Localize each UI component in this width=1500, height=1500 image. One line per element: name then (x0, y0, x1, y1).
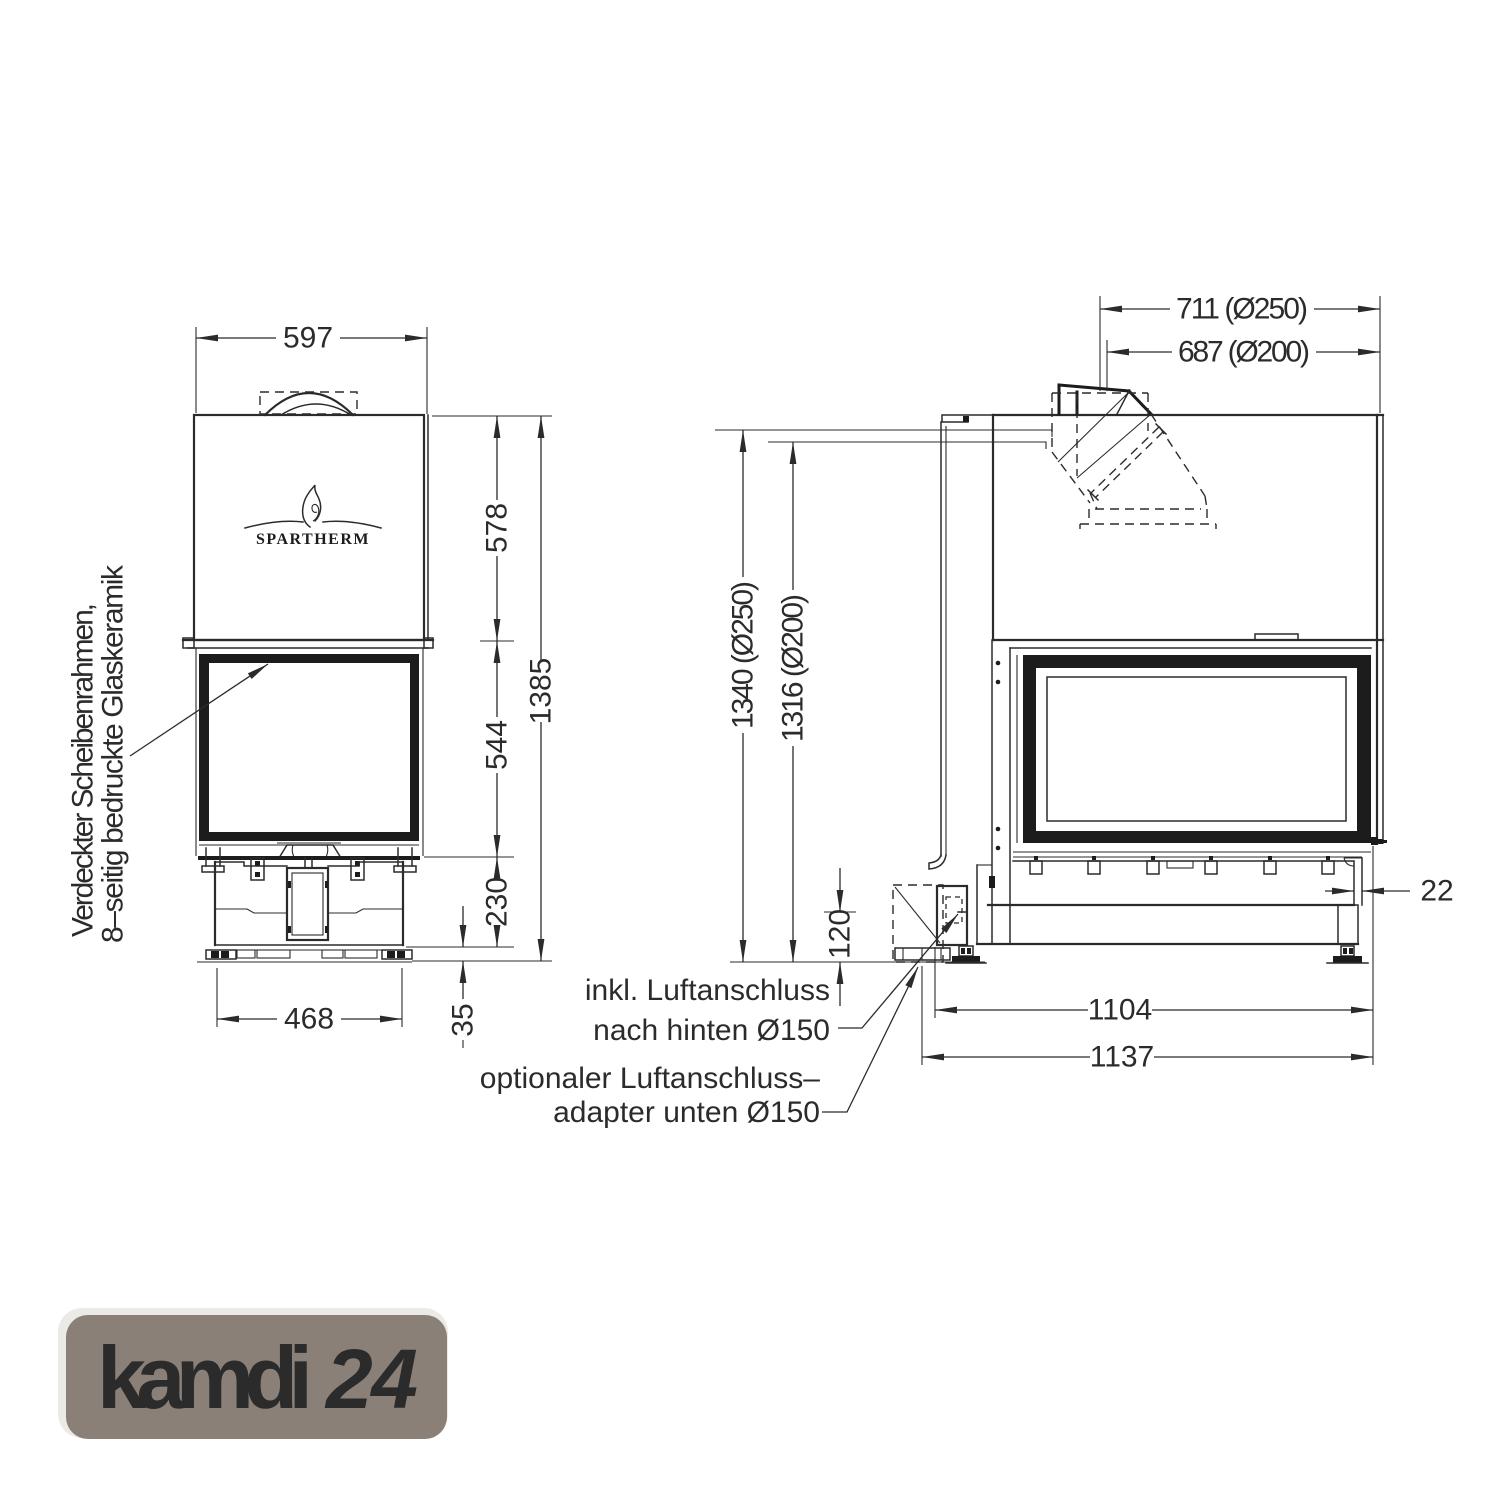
dim-side-height-250: 1340 (Ø250) (727, 581, 760, 729)
dim-side-edge: 22 (1420, 875, 1453, 908)
kamdi24-logo: kamdi 24 (58, 1308, 448, 1439)
kamdi24-logo-number: 24 (324, 1332, 418, 1426)
spartherm-wordmark: SPARTHERM (256, 531, 370, 548)
dim-side-total: 1137 (1090, 1041, 1155, 1074)
dim-front-height-upper: 578 (481, 503, 514, 553)
dim-side-height-200: 1316 (Ø200) (777, 594, 810, 742)
note-glass-frame-line2: 8–seitig bedruckte Glaskeramik (97, 564, 130, 943)
front-plinth (197, 858, 412, 962)
rear-air-box (937, 886, 967, 945)
note-bottom-air-line2: adapter unten Ø150 (553, 1096, 820, 1129)
dim-front-width-top: 597 (283, 322, 333, 355)
dim-front-width-base: 468 (284, 1003, 334, 1036)
dim-front-height-base: 230 (481, 877, 514, 927)
annotations: Verdeckter Scheibenrahmen, 8–seitig bedr… (67, 564, 831, 1129)
spartherm-logo: SPARTHERM (245, 485, 381, 548)
note-rear-air-line1: inkl. Luftanschluss (585, 974, 830, 1007)
leader-bottom-air (822, 967, 918, 1112)
front-view: SPARTHERM (183, 392, 433, 962)
dim-side-air-height: 120 (824, 909, 857, 959)
front-air-duct-box (287, 868, 328, 940)
side-rear-shield (929, 415, 992, 869)
dim-side-top-200: 687 (Ø200) (1178, 336, 1310, 369)
front-upper-body (194, 415, 424, 640)
side-base (946, 837, 1387, 963)
fireplace-dimension-drawing: SPARTHERM (0, 0, 1500, 1500)
note-glass-frame-line1: Verdeckter Scheibenrahmen, (67, 603, 100, 937)
note-rear-air-line2: nach hinten Ø150 (593, 1014, 830, 1047)
side-flue-collar (1052, 385, 1216, 529)
dim-side-top-250: 711 (Ø250) (1176, 293, 1308, 326)
front-window-glass (209, 663, 410, 832)
side-air-connection (893, 885, 967, 962)
side-view (893, 385, 1387, 963)
kamdi24-logo-brand: kamdi (97, 1328, 313, 1427)
technical-drawing-page: SPARTHERM (0, 0, 1500, 1500)
dim-front-feet: 35 (447, 1003, 480, 1036)
note-bottom-air-line1: optionaler Luftanschluss– (480, 1062, 821, 1095)
side-window-glass (1036, 668, 1357, 831)
dim-front-height-total: 1385 (525, 658, 558, 725)
dim-front-height-glass: 544 (481, 720, 514, 770)
side-base-tabs (1030, 856, 1334, 874)
dim-side-base: 1104 (1088, 994, 1153, 1027)
front-mount-brackets (202, 848, 416, 880)
